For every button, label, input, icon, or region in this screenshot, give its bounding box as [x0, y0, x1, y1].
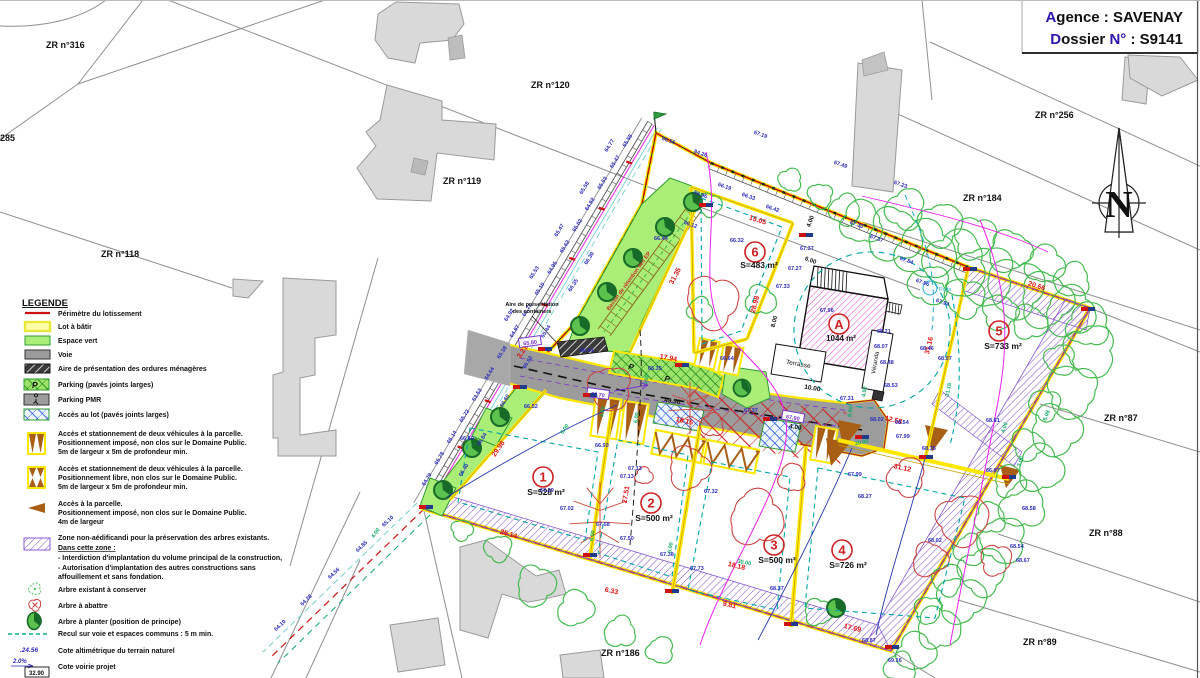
svg-text:S=726 m²: S=726 m²	[829, 560, 867, 570]
svg-text:67.99: 67.99	[848, 472, 862, 478]
svg-text:67.31: 67.31	[840, 396, 854, 402]
svg-text:67.58: 67.58	[596, 522, 610, 528]
svg-text:Accès et stationnement de deux: Accès et stationnement de deux véhicules…	[58, 431, 243, 438]
svg-text:66.93: 66.93	[595, 443, 609, 449]
svg-text:Accès à la parcelle.: Accès à la parcelle.	[58, 501, 123, 508]
svg-text:1044 m²: 1044 m²	[826, 334, 856, 343]
svg-text:ZR n°118: ZR n°118	[101, 249, 139, 259]
svg-text:- Interdiction d'implantation: - Interdiction d'implantation du volume …	[58, 555, 282, 562]
svg-text:Arbre existant à conserver: Arbre existant à conserver	[58, 587, 147, 594]
svg-text:ZR n°87: ZR n°87	[1104, 413, 1138, 423]
svg-text:6: 6	[751, 245, 758, 260]
svg-text:Parking (pavés joints larges): Parking (pavés joints larges)	[58, 382, 153, 389]
svg-text:67.29: 67.29	[540, 488, 554, 494]
svg-text:68.54: 68.54	[1010, 544, 1025, 550]
svg-text:4m de largeur: 4m de largeur	[58, 519, 104, 526]
svg-text:S=483 m²: S=483 m²	[740, 260, 778, 270]
svg-text:Aire de présentation des ordur: Aire de présentation des ordures ménagèr…	[58, 366, 207, 373]
svg-text:67.50: 67.50	[620, 536, 634, 542]
svg-text:Espace vert: Espace vert	[58, 338, 98, 345]
svg-text:Voie: Voie	[58, 352, 72, 359]
svg-text:69.16: 69.16	[888, 658, 902, 664]
svg-text:66.41: 66.41	[580, 348, 594, 354]
svg-text:A: A	[834, 317, 844, 332]
svg-text:Cote voirie projet: Cote voirie projet	[58, 664, 116, 671]
svg-text:Dans cette zone :: Dans cette zone :	[58, 545, 116, 552]
svg-text:68.35: 68.35	[922, 446, 936, 452]
svg-text:2.0%: 2.0%	[12, 659, 27, 665]
svg-text:67.02: 67.02	[560, 506, 574, 512]
svg-text:S=733 m²: S=733 m²	[984, 341, 1022, 351]
svg-text:LEGENDE: LEGENDE	[22, 298, 68, 309]
svg-text:Recul sur voie et espaces comm: Recul sur voie et espaces communs : 5 m …	[58, 631, 213, 638]
svg-text:Positionnement imposé, non clo: Positionnement imposé, non clos sur le D…	[58, 510, 247, 517]
svg-text:67.13: 67.13	[628, 466, 642, 472]
svg-text:S=500 m²: S=500 m²	[635, 513, 673, 523]
svg-text:ZR n°88: ZR n°88	[1089, 528, 1123, 538]
svg-text:68.67: 68.67	[1016, 558, 1030, 564]
svg-text:Aire de présentation: Aire de présentation	[505, 302, 559, 308]
svg-text:66.44: 66.44	[654, 236, 669, 242]
svg-text:2: 2	[647, 496, 654, 511]
svg-text:67.73: 67.73	[690, 566, 704, 572]
svg-text:68.02: 68.02	[870, 417, 884, 423]
svg-text:Positionnement imposé, non clo: Positionnement imposé, non clos sur le D…	[58, 440, 247, 447]
svg-text:66.35: 66.35	[648, 366, 662, 372]
svg-text:68.21: 68.21	[877, 329, 891, 335]
svg-text:- Autorisation d'implantation: - Autorisation d'implantation des autres…	[58, 565, 256, 572]
svg-text:3: 3	[770, 538, 777, 553]
svg-text:66.32: 66.32	[730, 238, 744, 244]
svg-text:66.52: 66.52	[524, 404, 538, 410]
svg-text:68.02: 68.02	[928, 538, 942, 544]
svg-text:67.99: 67.99	[896, 434, 910, 440]
svg-text:Agence : SAVENAY: Agence : SAVENAY	[1045, 9, 1183, 26]
svg-text:ZR n°89: ZR n°89	[1023, 637, 1057, 647]
svg-text:68.46: 68.46	[920, 346, 934, 352]
svg-text:1: 1	[539, 470, 546, 485]
svg-text:Arbre à planter (position de p: Arbre à planter (position de principe)	[58, 619, 181, 626]
svg-text:ZR n°120: ZR n°120	[531, 80, 570, 90]
svg-text:Accès et stationnement de deux: Accès et stationnement de deux véhicules…	[58, 466, 243, 473]
svg-text:68.27: 68.27	[858, 494, 872, 500]
svg-text:285: 285	[0, 133, 15, 143]
svg-text:68.07: 68.07	[938, 356, 952, 362]
svg-text:68.58: 68.58	[1022, 506, 1036, 512]
svg-text:Puits: Puits	[939, 287, 951, 293]
svg-text:66.60: 66.60	[460, 436, 474, 442]
svg-text:Parking PMR: Parking PMR	[58, 397, 101, 404]
svg-text:67.33: 67.33	[776, 284, 790, 290]
svg-text:ZR n°184: ZR n°184	[963, 193, 1002, 203]
svg-text:Positionnement libre, non clos: Positionnement libre, non clos sur le Do…	[58, 475, 237, 482]
svg-text:68.53: 68.53	[884, 383, 898, 389]
svg-text:67.96: 67.96	[820, 308, 834, 314]
svg-text:S=500 m²: S=500 m²	[758, 555, 796, 565]
svg-text:67.37: 67.37	[800, 246, 814, 252]
svg-text:67.32: 67.32	[704, 489, 718, 495]
svg-text:67.37: 67.37	[744, 408, 758, 414]
svg-text:68.37: 68.37	[770, 586, 784, 592]
svg-text:ZR n°186: ZR n°186	[601, 648, 640, 658]
svg-text:Zone non-aédificandi pour la p: Zone non-aédificandi pour la préservatio…	[58, 535, 269, 542]
svg-text:5m de largeur x 5m de profonde: 5m de largeur x 5m de profondeur min.	[58, 449, 188, 456]
svg-text:68.54: 68.54	[895, 420, 910, 426]
svg-text:affouillement et sans fondatio: affouillement et sans fondation.	[58, 574, 163, 581]
svg-text:ZR n°316: ZR n°316	[46, 40, 85, 50]
svg-text:Accès au lot (pavés joints lar: Accès au lot (pavés joints larges)	[58, 412, 169, 419]
svg-text:68.61: 68.61	[986, 418, 1000, 424]
svg-text:.24.56: .24.56	[20, 647, 38, 654]
svg-text:5: 5	[995, 324, 1002, 339]
svg-text:5m de largeur x 5m de profonde: 5m de largeur x 5m de profondeur min.	[58, 484, 188, 491]
svg-text:ZR n°119: ZR n°119	[443, 176, 481, 186]
svg-text:67.27: 67.27	[788, 266, 802, 272]
svg-text:Périmètre du lotissement: Périmètre du lotissement	[58, 311, 142, 318]
svg-text:Dossier N° : S9141: Dossier N° : S9141	[1050, 31, 1183, 48]
svg-text:des containers: des containers	[513, 309, 552, 315]
svg-text:68.87: 68.87	[862, 638, 876, 644]
svg-text:Cote altimétrique du terrain n: Cote altimétrique du terrain naturel	[58, 648, 175, 655]
svg-text:P: P	[32, 380, 38, 390]
svg-text:68.07: 68.07	[874, 344, 888, 350]
svg-text:67.13: 67.13	[620, 474, 634, 480]
svg-text:66.64: 66.64	[720, 356, 735, 362]
svg-text:Arbre à abattre: Arbre à abattre	[58, 603, 108, 610]
svg-text:ZR n°256: ZR n°256	[1035, 110, 1074, 120]
svg-text:66.67: 66.67	[986, 468, 1000, 474]
svg-text:4: 4	[838, 543, 846, 558]
svg-text:32.90: 32.90	[29, 671, 45, 677]
svg-text:Lot à bâtir: Lot à bâtir	[58, 324, 92, 331]
svg-text:68.48: 68.48	[880, 360, 894, 366]
svg-text:N: N	[1105, 184, 1132, 226]
